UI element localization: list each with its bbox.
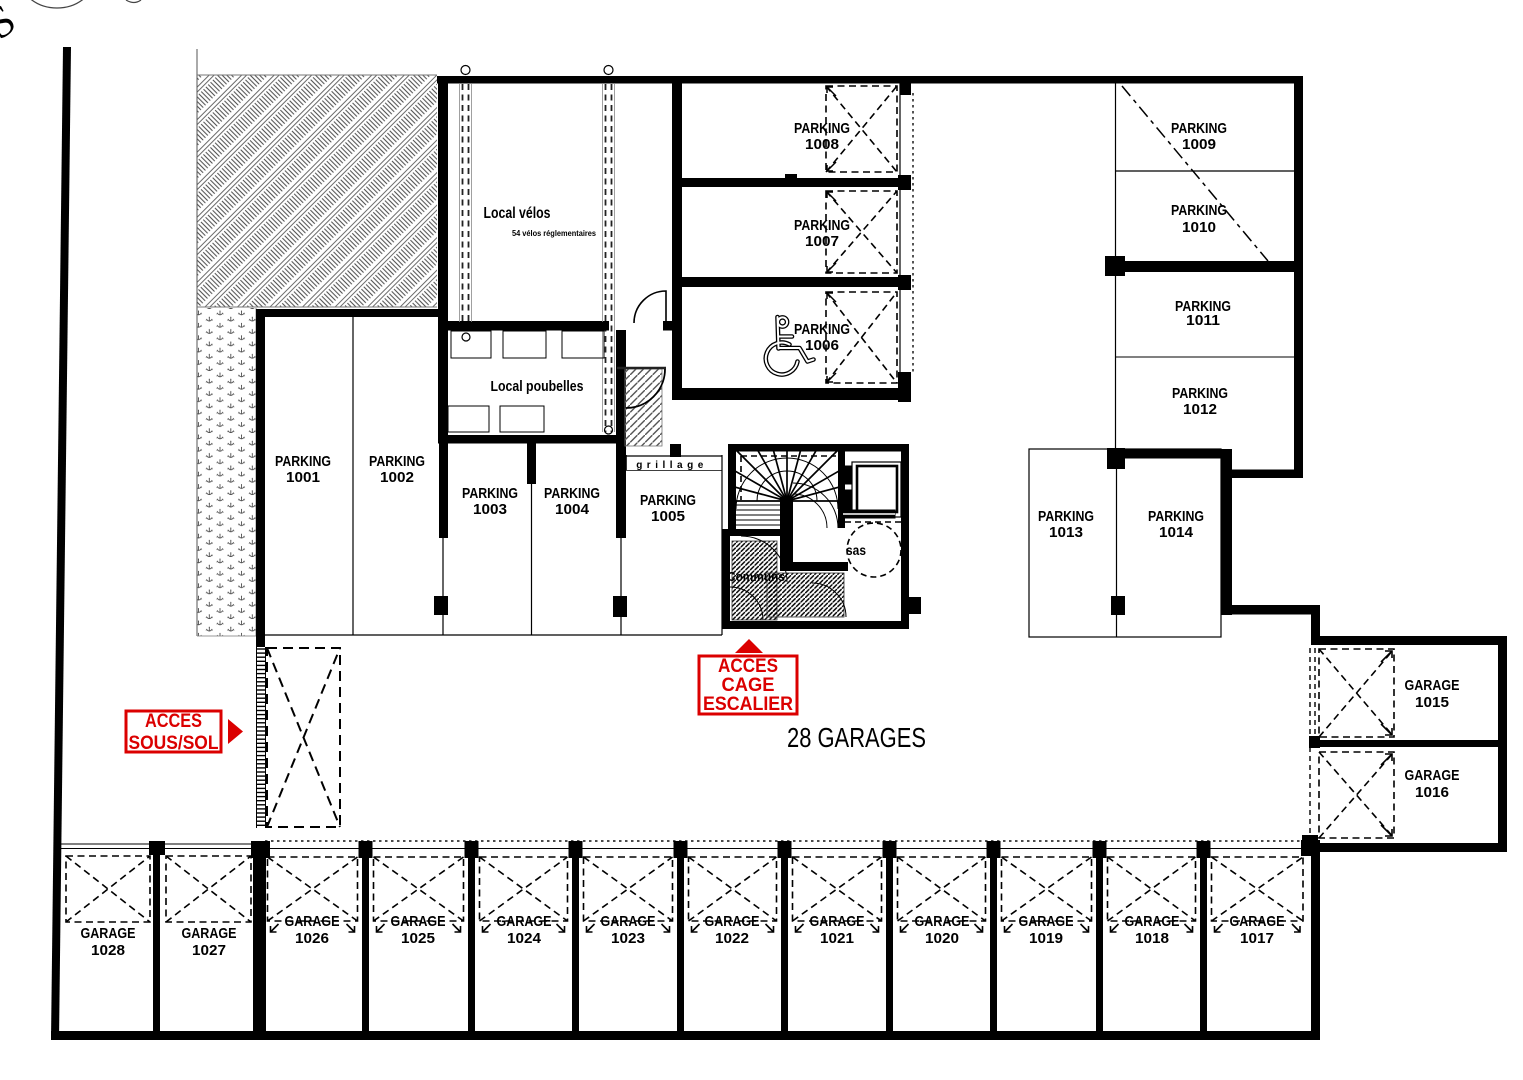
svg-text:1008: 1008: [805, 136, 839, 153]
svg-text:PARKING: PARKING: [794, 120, 850, 137]
svg-text:ESCALIER: ESCALIER: [703, 694, 793, 715]
svg-text:1009: 1009: [1182, 136, 1216, 153]
svg-text:1015: 1015: [1415, 694, 1449, 711]
svg-text:1004: 1004: [555, 501, 590, 518]
svg-text:GARAGE: GARAGE: [810, 913, 865, 930]
svg-text:PARKING: PARKING: [640, 492, 696, 509]
svg-text:1012: 1012: [1183, 401, 1217, 418]
svg-text:sas: sas: [846, 542, 866, 558]
svg-text:1016: 1016: [1415, 784, 1449, 801]
svg-text:1013: 1013: [1049, 524, 1083, 541]
svg-text:1028: 1028: [91, 942, 125, 959]
svg-text:Local poubelles: Local poubelles: [491, 378, 584, 395]
svg-text:1010: 1010: [1182, 219, 1216, 236]
svg-text:1023: 1023: [611, 930, 645, 947]
svg-text:PARKING: PARKING: [794, 321, 850, 338]
svg-text:1005: 1005: [651, 508, 685, 525]
svg-text:GARAGE: GARAGE: [285, 913, 340, 930]
svg-text:54 vélos réglementaires: 54 vélos réglementaires: [512, 228, 596, 238]
svg-text:GARAGE: GARAGE: [81, 925, 136, 942]
svg-text:1025: 1025: [401, 930, 435, 947]
svg-text:grillage: grillage: [636, 460, 708, 471]
svg-text:GARAGE: GARAGE: [915, 913, 970, 930]
svg-text:GARAGE: GARAGE: [1125, 913, 1180, 930]
svg-text:1022: 1022: [715, 930, 749, 947]
svg-text:1027: 1027: [192, 942, 226, 959]
svg-text:PARKING: PARKING: [1171, 120, 1227, 137]
svg-text:1003: 1003: [473, 501, 507, 518]
svg-text:CAGE: CAGE: [722, 675, 775, 696]
svg-text:GARAGE: GARAGE: [182, 925, 237, 942]
svg-text:1018: 1018: [1135, 930, 1169, 947]
svg-text:GARAGE: GARAGE: [1405, 767, 1460, 784]
svg-text:1017: 1017: [1240, 930, 1274, 947]
svg-text:GARAGE: GARAGE: [391, 913, 446, 930]
svg-text:GARAGE: GARAGE: [705, 913, 760, 930]
svg-text:SOUS/SOL: SOUS/SOL: [129, 733, 219, 754]
svg-text:ACCES: ACCES: [145, 711, 202, 732]
svg-text:1021: 1021: [820, 930, 854, 947]
svg-text:PARKING: PARKING: [794, 217, 850, 234]
svg-text:PARKING: PARKING: [462, 485, 518, 502]
svg-text:ACCES: ACCES: [718, 656, 778, 677]
svg-text:PARKING: PARKING: [275, 453, 331, 470]
svg-text:1026: 1026: [295, 930, 329, 947]
svg-text:1024: 1024: [507, 930, 542, 947]
svg-text:PARKING: PARKING: [1171, 202, 1227, 219]
svg-text:PARKING: PARKING: [544, 485, 600, 502]
svg-text:PARKING: PARKING: [1038, 508, 1094, 525]
svg-text:Local vélos: Local vélos: [484, 205, 551, 222]
svg-text:1002: 1002: [380, 469, 414, 486]
svg-text:1001: 1001: [286, 469, 320, 486]
svg-text:1020: 1020: [925, 930, 959, 947]
svg-text:PARKING: PARKING: [1172, 385, 1228, 402]
svg-text:1007: 1007: [805, 233, 839, 250]
svg-text:PARKING: PARKING: [369, 453, 425, 470]
svg-text:1011: 1011: [1186, 312, 1220, 329]
svg-text:GARAGE: GARAGE: [1230, 913, 1285, 930]
svg-text:1014: 1014: [1159, 524, 1194, 541]
svg-text:GARAGE: GARAGE: [1405, 677, 1460, 694]
svg-text:PARKING: PARKING: [1148, 508, 1204, 525]
svg-text:GARAGE: GARAGE: [601, 913, 656, 930]
svg-text:GARAGE: GARAGE: [497, 913, 552, 930]
svg-text:28 GARAGES: 28 GARAGES: [787, 722, 926, 753]
svg-text:1019: 1019: [1029, 930, 1063, 947]
svg-text:Communs: Communs: [727, 570, 785, 584]
svg-text:GARAGE: GARAGE: [1019, 913, 1074, 930]
svg-text:1006: 1006: [805, 337, 839, 354]
